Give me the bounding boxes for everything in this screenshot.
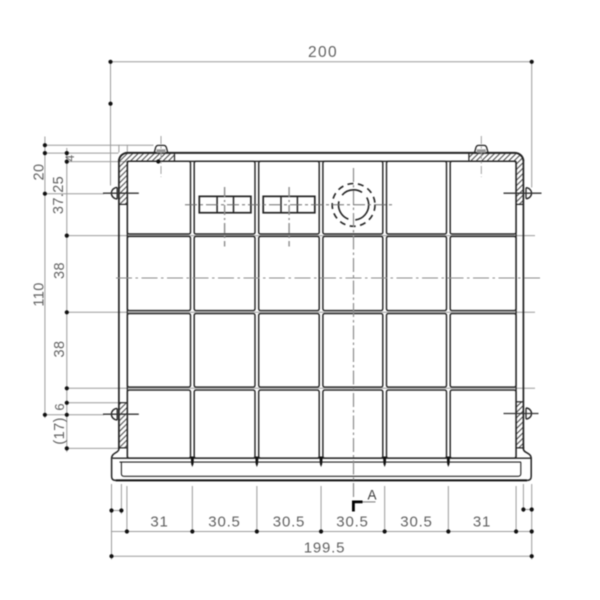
svg-text:30.5: 30.5 — [336, 514, 368, 531]
svg-text:37.25: 37.25 — [51, 176, 67, 214]
svg-text:4: 4 — [63, 155, 77, 162]
svg-text:20: 20 — [32, 164, 48, 181]
svg-text:38: 38 — [52, 262, 68, 279]
svg-text:38: 38 — [52, 341, 68, 358]
svg-text:31: 31 — [150, 514, 168, 531]
svg-text:199.5: 199.5 — [304, 540, 346, 557]
svg-text:6: 6 — [52, 403, 67, 410]
svg-text:30.5: 30.5 — [208, 514, 240, 531]
svg-text:200: 200 — [308, 44, 338, 61]
svg-text:A: A — [367, 488, 376, 503]
svg-text:30.5: 30.5 — [400, 514, 432, 531]
svg-text:30.5: 30.5 — [273, 514, 305, 531]
svg-text:31: 31 — [473, 514, 491, 531]
svg-text:(17): (17) — [52, 417, 68, 444]
svg-text:110: 110 — [32, 282, 48, 306]
